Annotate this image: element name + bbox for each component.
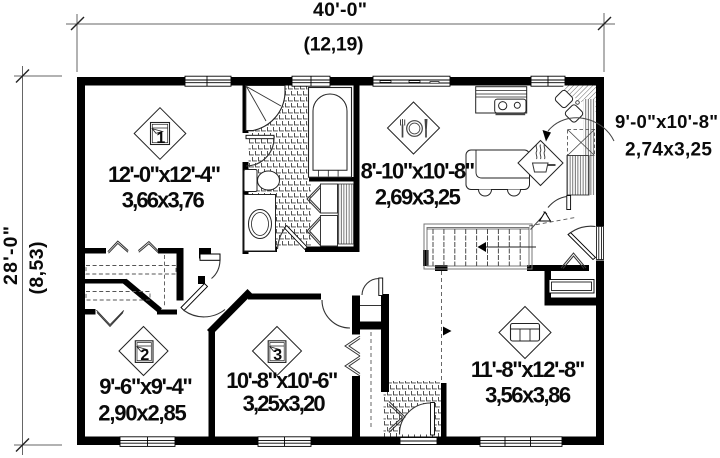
svg-text:3,25x3,20: 3,25x3,20 bbox=[243, 391, 326, 416]
svg-text:9'-0"x10'-8": 9'-0"x10'-8" bbox=[615, 111, 718, 132]
svg-text:(8,53): (8,53) bbox=[26, 242, 48, 295]
svg-text:(12,19): (12,19) bbox=[304, 34, 364, 56]
svg-text:28'-0": 28'-0" bbox=[0, 226, 22, 285]
svg-text:2,90x2,85: 2,90x2,85 bbox=[98, 401, 187, 426]
svg-text:2,74x3,25: 2,74x3,25 bbox=[625, 140, 712, 161]
svg-text:3,56x3,86: 3,56x3,86 bbox=[485, 383, 571, 408]
svg-text:2,69x3,25: 2,69x3,25 bbox=[375, 185, 461, 210]
svg-text:8'-10"x10'-8": 8'-10"x10'-8" bbox=[361, 159, 476, 184]
svg-text:11'-8"x12'-8": 11'-8"x12'-8" bbox=[471, 357, 586, 382]
svg-text:12'-0"x12'-4": 12'-0"x12'-4" bbox=[108, 162, 221, 187]
svg-text:9'-6"x9'-4": 9'-6"x9'-4" bbox=[99, 374, 193, 399]
svg-text:2: 2 bbox=[140, 347, 149, 364]
svg-text:10'-8"x10'-6": 10'-8"x10'-6" bbox=[226, 368, 338, 393]
svg-text:1: 1 bbox=[156, 130, 165, 147]
svg-text:3,66x3,76: 3,66x3,76 bbox=[122, 188, 205, 213]
svg-text:40'-0": 40'-0" bbox=[313, 0, 367, 21]
svg-text:3: 3 bbox=[273, 347, 282, 364]
